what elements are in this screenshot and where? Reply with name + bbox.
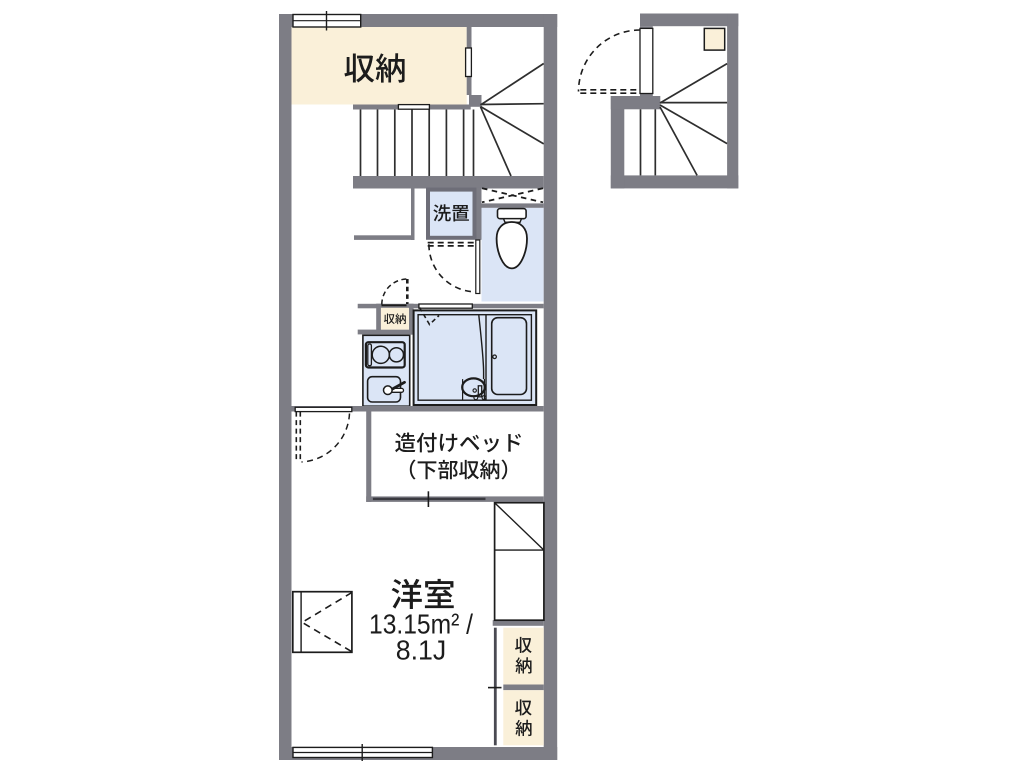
svg-text:8.1J: 8.1J bbox=[396, 635, 447, 666]
